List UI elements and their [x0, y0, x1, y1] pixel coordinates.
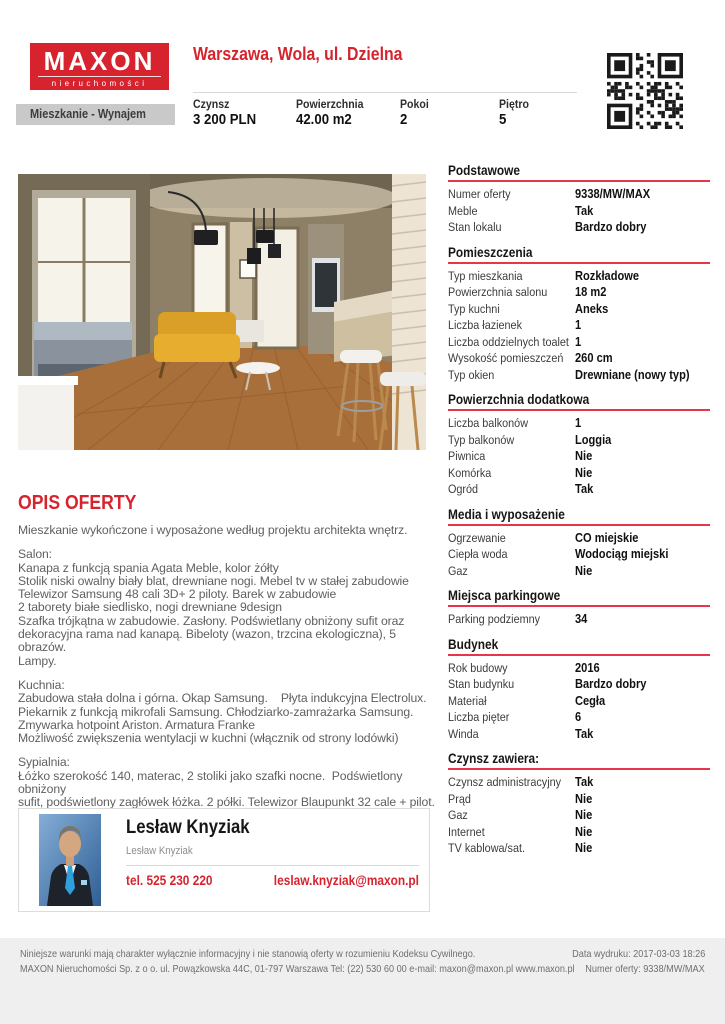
apartment-photo	[18, 174, 426, 450]
detail-value: Bardzo dobry	[575, 677, 656, 691]
category-badge: Mieszkanie - Wynajem	[16, 104, 175, 125]
detail-row: TV kablowa/sat.Nie	[448, 841, 710, 858]
detail-label: Internet	[448, 825, 490, 839]
detail-value: Drewniane (nowy typ)	[575, 368, 705, 382]
detail-label: Meble	[448, 204, 482, 218]
detail-label: Liczba pięter	[448, 710, 518, 724]
detail-value: 1	[575, 318, 582, 332]
section-title: Czynsz zawiera:	[448, 751, 710, 766]
detail-section: PomieszczeniaTyp mieszkaniaRozkładowePow…	[448, 245, 710, 385]
detail-value: Nie	[575, 466, 595, 480]
detail-value: 9338/MW/MAX	[575, 187, 660, 201]
detail-label: Typ balkonów	[448, 433, 523, 447]
detail-label: Wysokość pomieszczeń	[448, 351, 579, 365]
detail-label: Ogród	[448, 482, 482, 496]
detail-label: Materiał	[448, 694, 492, 708]
category-label: Mieszkanie - Wynajem	[30, 104, 146, 125]
agent-divider	[126, 865, 419, 866]
detail-section: Media i wyposażenieOgrzewanieCO miejskie…	[448, 507, 710, 581]
description-paragraph: Kuchnia: Zabudowa stała dolna i górna. O…	[18, 679, 446, 745]
stat-area-value: 42.00 m2	[296, 111, 352, 129]
detail-section: PodstawoweNumer oferty9338/MW/MAXMebleTa…	[448, 163, 710, 237]
section-underline	[448, 654, 710, 656]
stat-area: Powierzchnia 42.00 m2	[296, 97, 373, 129]
detail-row: Liczba oddzielnych toalet1	[448, 335, 710, 352]
offer-description: Mieszkanie wykończone i wyposażone wedłu…	[18, 524, 446, 834]
detail-label: Rok budowy	[448, 661, 516, 675]
detail-label: Prąd	[448, 792, 474, 806]
detail-row: WindaTak	[448, 727, 710, 744]
stat-rooms-label: Pokoi	[400, 97, 429, 111]
detail-label: Stan budynku	[448, 677, 523, 691]
detail-row: Czynsz administracyjnyTak	[448, 775, 710, 792]
detail-label: Parking podziemny	[448, 612, 553, 626]
page-footer: Niniejsze warunki mają charakter wyłączn…	[0, 938, 725, 1024]
detail-value: Wodociąg miejski	[575, 547, 681, 561]
detail-value: Nie	[575, 808, 595, 822]
detail-row: MebleTak	[448, 204, 710, 221]
detail-row: Typ okienDrewniane (nowy typ)	[448, 368, 710, 385]
detail-row: Powierzchnia salonu18 m2	[448, 285, 710, 302]
description-paragraph: Mieszkanie wykończone i wyposażone wedłu…	[18, 524, 446, 537]
detail-row: PrądNie	[448, 792, 710, 809]
detail-label: Powierzchnia salonu	[448, 285, 561, 299]
detail-value: Nie	[575, 825, 595, 839]
detail-row: KomórkaNie	[448, 466, 710, 483]
detail-row: GazNie	[448, 808, 710, 825]
stat-floor-label: Piętro	[499, 97, 529, 111]
detail-section: Miejsca parkingoweParking podziemny34	[448, 588, 710, 629]
stat-rent-label: Czynsz	[193, 97, 229, 111]
detail-label: Numer oferty	[448, 187, 519, 201]
detail-row: Parking podziemny34	[448, 612, 710, 629]
detail-row: Typ kuchniAneks	[448, 302, 710, 319]
detail-label: Czynsz administracyjny	[448, 775, 576, 789]
detail-value: Cegła	[575, 694, 609, 708]
detail-label: TV kablowa/sat.	[448, 841, 535, 855]
detail-row: MateriałCegła	[448, 694, 710, 711]
maxon-logo: MAXON nieruchomości	[30, 43, 169, 90]
detail-value: Loggia	[575, 433, 616, 447]
qr-code	[607, 52, 683, 130]
detail-row: Liczba pięter6	[448, 710, 710, 727]
detail-value: 18 m2	[575, 285, 611, 299]
stat-rent-value: 3 200 PLN	[193, 111, 256, 129]
detail-label: Winda	[448, 727, 483, 741]
detail-value: 1	[575, 335, 582, 349]
detail-row: Rok budowy2016	[448, 661, 710, 678]
section-underline	[448, 768, 710, 770]
detail-label: Liczba łazienek	[448, 318, 532, 332]
section-underline	[448, 605, 710, 607]
detail-value: Rozkładowe	[575, 269, 648, 283]
section-underline	[448, 262, 710, 264]
detail-value: 260 cm	[575, 351, 618, 365]
footer-company-line: MAXON Nieruchomości Sp. z o o. ul. Powąz…	[20, 962, 575, 977]
detail-value: 2016	[575, 661, 603, 675]
stat-floor-value: 5	[499, 111, 506, 129]
agent-card: Lesław Knyziak Lesław Knyziak tel. 525 2…	[18, 808, 430, 912]
agent-subtitle: Lesław Knyziak	[126, 845, 202, 857]
detail-row: Numer oferty9338/MW/MAX	[448, 187, 710, 204]
detail-label: Gaz	[448, 564, 471, 578]
detail-value: Nie	[575, 449, 595, 463]
detail-row: Stan budynkuBardzo dobry	[448, 677, 710, 694]
logo-title: MAXON	[30, 46, 169, 76]
detail-row: Liczba łazienek1	[448, 318, 710, 335]
detail-row: Typ mieszkaniaRozkładowe	[448, 269, 710, 286]
footer-disclaimer: Niniejsze warunki mają charakter wyłączn…	[20, 947, 475, 962]
detail-label: Liczba balkonów	[448, 416, 539, 430]
stat-area-label: Powierzchnia	[296, 97, 363, 111]
detail-value: Tak	[575, 204, 596, 218]
detail-value: Bardzo dobry	[575, 220, 656, 234]
section-title: Media i wyposażenie	[448, 507, 710, 522]
detail-section: Czynsz zawiera:Czynsz administracyjnyTak…	[448, 751, 710, 858]
detail-value: Aneks	[575, 302, 613, 316]
agent-name: Lesław Knyziak	[126, 817, 266, 839]
detail-row: Stan lokaluBardzo dobry	[448, 220, 710, 237]
detail-value: Tak	[575, 775, 596, 789]
detail-value: 34	[575, 612, 589, 626]
section-title: Pomieszczenia	[448, 245, 710, 260]
detail-row: GazNie	[448, 564, 710, 581]
detail-section: BudynekRok budowy2016Stan budynkuBardzo …	[448, 637, 710, 744]
detail-row: Ciepła wodaWodociąg miejski	[448, 547, 710, 564]
agent-phone: tel. 525 230 220	[126, 873, 224, 888]
footer-offer-number: Numer oferty: 9338/MW/MAX	[586, 962, 705, 977]
stat-rent: Czynsz 3 200 PLN	[193, 97, 265, 129]
detail-value: 6	[575, 710, 582, 724]
detail-section: Powierzchnia dodatkowaLiczba balkonów1Ty…	[448, 392, 710, 499]
detail-value: CO miejskie	[575, 531, 647, 545]
detail-row: Liczba balkonów1	[448, 416, 710, 433]
section-title: Miejsca parkingowe	[448, 588, 710, 603]
detail-value: Nie	[575, 792, 595, 806]
offer-description-heading: OPIS OFERTY	[18, 492, 152, 515]
detail-row: OgrzewanieCO miejskie	[448, 531, 710, 548]
detail-label: Stan lokalu	[448, 220, 509, 234]
detail-label: Typ kuchni	[448, 302, 507, 316]
agent-email-link[interactable]: leslaw.knyziak@maxon.pl	[254, 873, 419, 888]
description-paragraph: Salon: Kanapa z funkcją spania Agata Meb…	[18, 548, 446, 668]
stat-rooms: Pokoi 2	[400, 97, 433, 129]
stat-floor: Piętro 5	[499, 97, 533, 129]
section-underline	[448, 409, 710, 411]
detail-value: Tak	[575, 482, 596, 496]
detail-label: Typ mieszkania	[448, 269, 533, 283]
detail-label: Piwnica	[448, 449, 490, 463]
stat-rooms-value: 2	[400, 111, 407, 129]
detail-label: Komórka	[448, 466, 497, 480]
detail-row: PiwnicaNie	[448, 449, 710, 466]
detail-row: InternetNie	[448, 825, 710, 842]
detail-value: Nie	[575, 564, 595, 578]
section-underline	[448, 524, 710, 526]
detail-row: Typ balkonówLoggia	[448, 433, 710, 450]
detail-value: Tak	[575, 727, 596, 741]
detail-label: Gaz	[448, 808, 471, 822]
section-underline	[448, 180, 710, 182]
detail-label: Typ okien	[448, 368, 501, 382]
footer-print-info: Data wydruku: 2017-03-03 18:26 Numer ofe…	[554, 947, 705, 977]
detail-label: Ciepła woda	[448, 547, 516, 561]
section-title: Powierzchnia dodatkowa	[448, 392, 710, 407]
offer-page: MAXON nieruchomości Mieszkanie - Wynajem…	[0, 0, 725, 1024]
detail-label: Ogrzewanie	[448, 531, 514, 545]
logo-subtitle: nieruchomości	[38, 76, 161, 88]
detail-value: Nie	[575, 841, 595, 855]
detail-label: Liczba oddzielnych toalet	[448, 335, 585, 349]
detail-value: 1	[575, 416, 582, 430]
detail-row: Wysokość pomieszczeń260 cm	[448, 351, 710, 368]
details-panel: PodstawoweNumer oferty9338/MW/MAXMebleTa…	[448, 163, 710, 866]
header-divider	[193, 92, 577, 93]
detail-row: OgródTak	[448, 482, 710, 499]
agent-photo	[39, 814, 101, 906]
section-title: Podstawowe	[448, 163, 710, 178]
section-title: Budynek	[448, 637, 710, 652]
page-title: Warszawa, Wola, ul. Dzielna	[193, 44, 431, 65]
footer-print-date: Data wydruku: 2017-03-03 18:26	[572, 947, 705, 962]
